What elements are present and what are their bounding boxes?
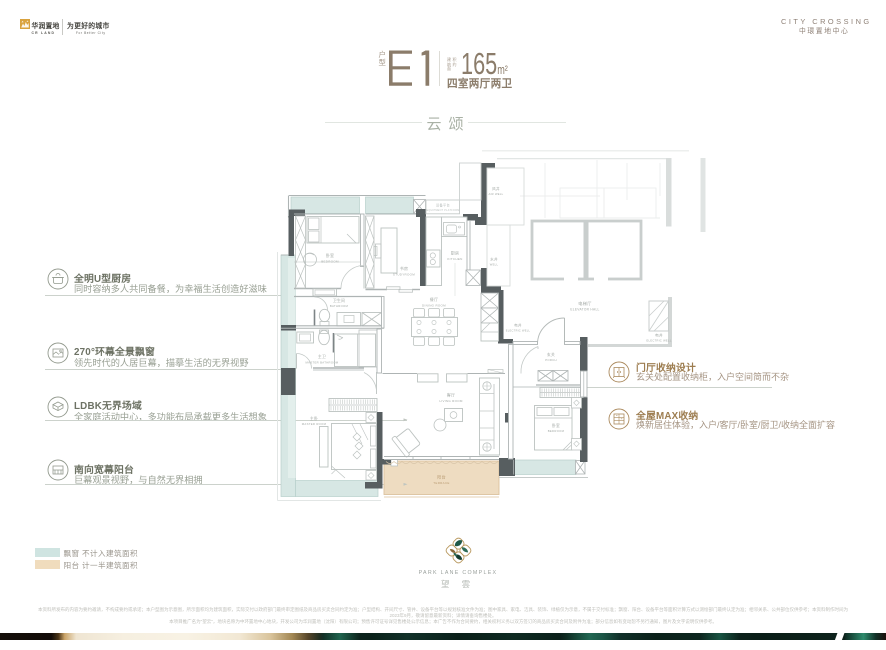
- svg-text:主卫: 主卫: [318, 354, 326, 359]
- svg-text:AIR WELL: AIR WELL: [489, 192, 504, 196]
- svg-text:ELECTRIC WELL: ELECTRIC WELL: [506, 329, 531, 333]
- svg-text:餐厅: 餐厅: [430, 296, 439, 302]
- svg-text:EQUIPMENT PLATFORM: EQUIPMENT PLATFORM: [426, 209, 459, 212]
- svg-text:ELEVATOR HALL: ELEVATOR HALL: [570, 308, 599, 312]
- svg-text:DINING ROOM: DINING ROOM: [422, 304, 446, 308]
- svg-text:设备平台: 设备平台: [436, 203, 450, 208]
- svg-text:卧室: 卧室: [326, 252, 335, 258]
- svg-text:主卧: 主卧: [310, 416, 318, 421]
- svg-text:BEDROOM: BEDROOM: [548, 429, 565, 433]
- svg-text:电井: 电井: [514, 323, 522, 328]
- svg-text:PORCH: PORCH: [545, 358, 557, 362]
- svg-text:TERRACE: TERRACE: [433, 481, 449, 485]
- svg-text:WELL: WELL: [490, 263, 499, 267]
- svg-text:风井: 风井: [492, 186, 500, 191]
- svg-text:ELECTRIC WELL: ELECTRIC WELL: [646, 339, 671, 343]
- svg-text:MASTER ROOM: MASTER ROOM: [302, 422, 327, 426]
- svg-text:阳台: 阳台: [437, 474, 446, 481]
- svg-text:BATHROOM: BATHROOM: [330, 304, 349, 308]
- svg-text:电梯厅: 电梯厅: [578, 300, 591, 307]
- svg-text:BEDROOM: BEDROOM: [321, 260, 339, 264]
- svg-text:卫生间: 卫生间: [333, 298, 345, 303]
- svg-text:电井: 电井: [655, 333, 663, 338]
- svg-text:书房: 书房: [400, 265, 409, 271]
- svg-text:客厅: 客厅: [447, 392, 456, 398]
- svg-text:卧室: 卧室: [552, 423, 560, 428]
- svg-text:水井: 水井: [490, 257, 498, 262]
- svg-text:KITCHEN: KITCHEN: [447, 257, 462, 261]
- svg-text:厨房: 厨房: [451, 250, 460, 256]
- svg-text:玄关: 玄关: [547, 352, 555, 357]
- svg-text:LIVING ROOM: LIVING ROOM: [439, 399, 463, 403]
